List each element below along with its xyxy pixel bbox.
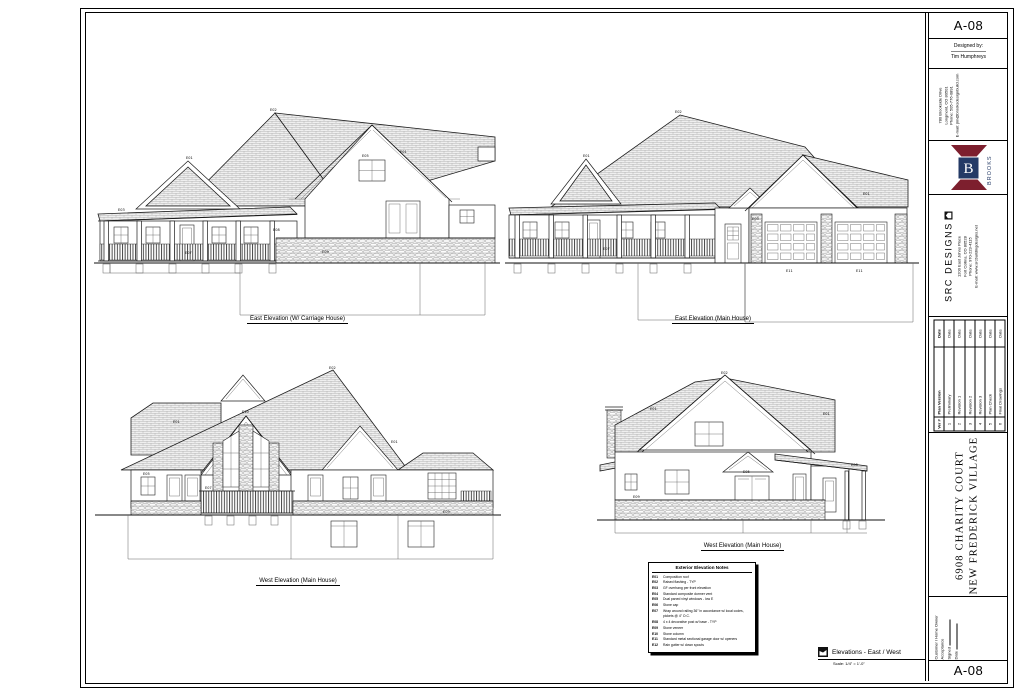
garage-door-right (835, 222, 887, 263)
callout-label: E02 (329, 366, 336, 370)
designer-name: Tim Humphreys (951, 51, 986, 61)
builder-address-line: 780 Brookside Drive (937, 69, 943, 141)
revision-row: 5Plan CheckDate (985, 320, 995, 430)
top-dormer-gable (221, 375, 265, 401)
firm-address-line: Fort Collins, CO 80528 (962, 195, 968, 317)
callout-label: E05 (362, 154, 369, 158)
project-subdivision: NEW FREDERICK VILLAGE (967, 433, 981, 597)
revision-row: 4Revision 3Date (975, 320, 985, 430)
builder-address-line: Longmont, CO 80501 (943, 69, 949, 141)
elevation-label-east-carriage: East Elevation (W/ Carriage House) (90, 316, 505, 322)
brooks-logo: B BROOKS (929, 141, 1008, 194)
firm-address-line: E-mail: www.srcbuildingdesigns.net (973, 195, 979, 317)
elevation-east-carriage-drawing: E02 E01 E01 E03 E07 E09 E05 E08 (90, 103, 505, 318)
callout-label: E10 (242, 410, 249, 414)
designed-by-box: Designed by: Tim Humphreys (929, 39, 1008, 69)
revision-row: 6Final DrawingsDate (995, 320, 1004, 430)
callout-label: E01 (863, 192, 870, 196)
callout-label: E07 (603, 247, 610, 251)
callout-label: E02 (270, 108, 277, 112)
acceptance-box: Customer / Home Owner Acceptance Signed … (929, 597, 1008, 661)
deck (199, 491, 295, 513)
callout-label: E11 (786, 269, 793, 273)
callout-label: E01 (400, 150, 407, 154)
revision-row: 1PreliminaryDate (944, 320, 954, 430)
callout-label: E07 (185, 251, 192, 255)
notes-title: Exterior Elevation Notes (652, 565, 752, 573)
revision-header-row: Ver # Plan Version Date (934, 320, 944, 430)
project-name-box: 6908 CHARITY COURT NEW FREDERICK VILLAGE (929, 433, 1008, 597)
note-item: E12Rain gutter w/ down spouts (652, 643, 752, 649)
garage-door-left (765, 222, 817, 263)
acceptance-date-row: Date (952, 599, 959, 659)
stone-base (276, 238, 495, 263)
callout-label: E01 (583, 154, 590, 158)
callout-label: E09 (752, 217, 759, 221)
callout-label: E09 (322, 250, 329, 254)
callout-label: E05 (743, 470, 750, 474)
drawing-scale: Scale: 1/4" = 1'-0" (833, 661, 925, 666)
house-icon (944, 211, 952, 219)
revision-box: Ver # Plan Version Date 1PreliminaryDate… (929, 317, 1008, 433)
designed-by-label: Designed by: (929, 43, 1008, 50)
firm-name-row: SRC DESIGNS (943, 195, 953, 317)
firm-address-line: 1200 East Johns Place (956, 195, 962, 317)
firm-name: SRC DESIGNS (943, 222, 953, 302)
revision-row: 3Revision 2Date (965, 320, 975, 430)
titleblock-divider-outer (925, 13, 926, 681)
callout-label: E08 (273, 228, 280, 232)
callout-label: E01 (391, 440, 398, 444)
foundation (128, 515, 493, 559)
callout-label: E07 (205, 486, 212, 490)
acceptance-title: Customer / Home Owner Acceptance (933, 599, 945, 659)
porch (98, 221, 297, 261)
stone-base (615, 500, 825, 520)
callout-label: E11 (856, 269, 863, 273)
builder-address-line: Phone: 505-776-0891 (948, 69, 954, 141)
callout-label: E02 (675, 110, 682, 114)
elevation-west-main-right-drawing: E02 E01 E01 E09 E08 E05 (595, 370, 890, 545)
drawing-title: Elevations - East / West (832, 649, 901, 656)
foundation (615, 520, 867, 533)
titleblock: A-08 Designed by: Tim Humphreys 780 Broo… (929, 13, 1008, 681)
revision-table: Ver # Plan Version Date 1PreliminaryDate… (933, 319, 1005, 431)
logo-wordmark: BROOKS (987, 155, 993, 185)
callout-label: E02 (721, 371, 728, 375)
basement-windows (331, 521, 434, 547)
callout-label: E05 (143, 472, 150, 476)
callout-label: E01 (173, 420, 180, 424)
revision-row: 2Revision 1Date (954, 320, 964, 430)
elevation-label-west-main-left: West Elevation (Main House) (93, 578, 503, 584)
foundation (103, 263, 485, 315)
logo-monogram: B (963, 161, 973, 177)
sheet-number-top: A-08 (929, 13, 1008, 39)
drawing-title-block: Elevations - East / West Scale: 1/4" = 1… (818, 647, 925, 666)
callout-label: E01 (186, 156, 193, 160)
right-wing-roof (398, 453, 493, 470)
callout-label: E03 (118, 208, 125, 212)
foundation (514, 263, 913, 322)
builder-address-line: E-mail: jim@brooksdesignbuild.com (954, 69, 960, 141)
elevation-label-west-main-right: West Elevation (Main House) (595, 543, 890, 549)
elevation-east-main-drawing: E02 E01 E01 E11 E11 E09 E07 (503, 100, 923, 330)
exterior-elevation-notes: Exterior Elevation Notes E01Composition … (648, 562, 756, 653)
callout-label: E01 (650, 407, 657, 411)
firm-box: SRC DESIGNS 1200 East Johns Place Fort C… (929, 195, 1008, 317)
builder-logo-box: B BROOKS (929, 141, 1008, 195)
callout-label: E09 (633, 495, 640, 499)
stone-base (131, 501, 493, 515)
right-wing (449, 205, 495, 238)
elevation-label-east-main: East Elevation (Main House) (503, 316, 923, 322)
callout-label: E08 (851, 463, 858, 467)
builder-address-box: 780 Brookside Drive Longmont, CO 80501 P… (929, 69, 1008, 141)
callout-label: E01 (823, 412, 830, 416)
note-item: E07Wrap around railing 36" in accordance… (652, 609, 752, 620)
sheet-logo-icon (818, 647, 828, 657)
acceptance-signed-row: Signed (945, 599, 952, 659)
firm-address-line: Phone: 970-223-4115 (967, 195, 973, 317)
sheet-number-bottom: A-08 (929, 661, 1008, 681)
callout-label: E09 (443, 510, 450, 514)
project-address: 6908 CHARITY COURT (953, 433, 967, 597)
porch (509, 215, 715, 258)
elevation-west-main-left-drawing: E02 E01 E01 E10 E07 E05 E09 (93, 363, 503, 578)
